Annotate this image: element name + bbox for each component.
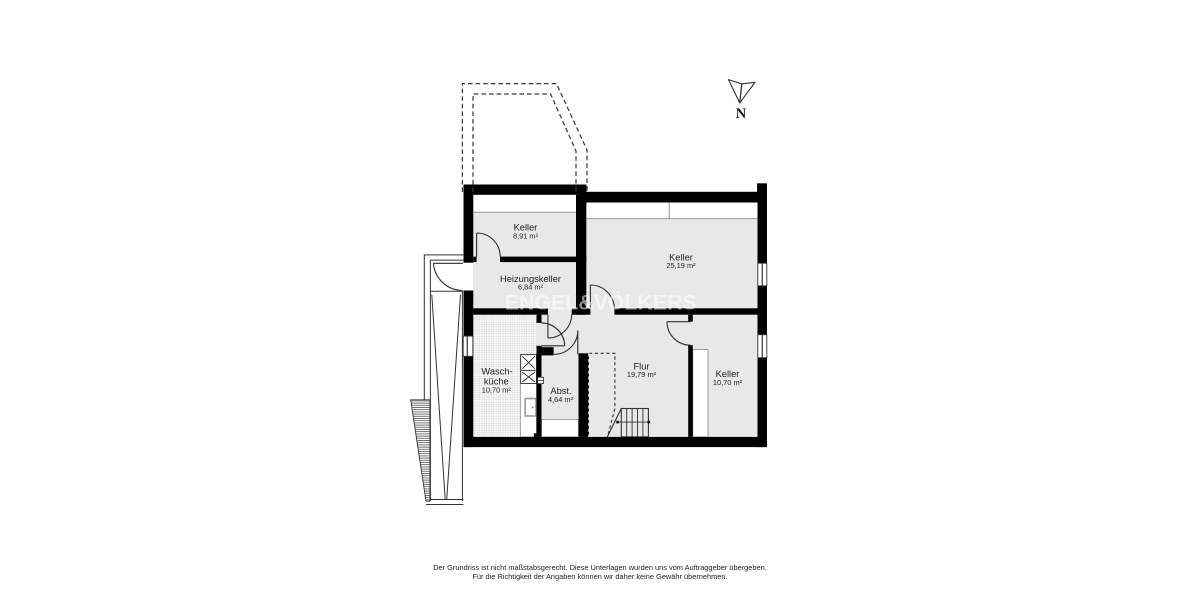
svg-text:8,91 m²: 8,91 m² <box>513 231 539 240</box>
svg-text:ENGEL&VÖLKERS: ENGEL&VÖLKERS <box>505 290 697 315</box>
svg-text:Für die Richtigkeit der Angabe: Für die Richtigkeit der Angaben können w… <box>472 572 727 581</box>
svg-text:19,79 m²: 19,79 m² <box>627 370 657 379</box>
svg-text:25,19 m²: 25,19 m² <box>666 261 696 270</box>
svg-text:4,64 m²: 4,64 m² <box>548 395 574 404</box>
svg-text:Wasch-: Wasch- <box>481 367 512 377</box>
svg-text:N: N <box>736 106 747 122</box>
svg-text:10,70 m²: 10,70 m² <box>482 385 512 394</box>
svg-text:Der Grundriss ist nicht maßsta: Der Grundriss ist nicht maßstabsgerecht.… <box>433 563 767 572</box>
svg-text:10,70 m²: 10,70 m² <box>713 378 743 387</box>
